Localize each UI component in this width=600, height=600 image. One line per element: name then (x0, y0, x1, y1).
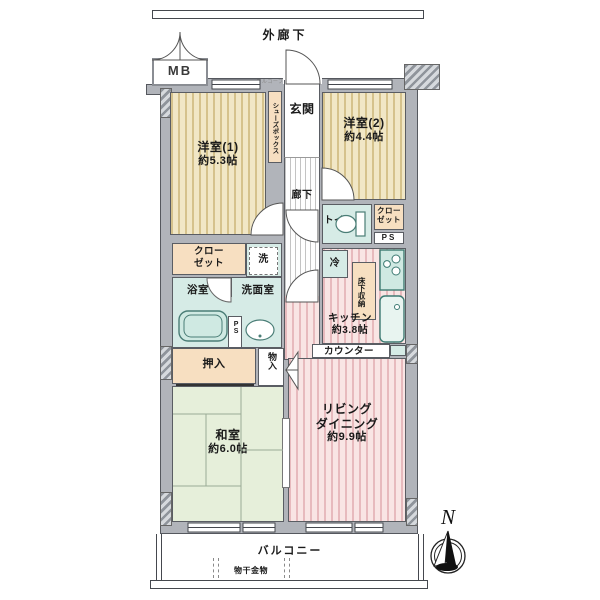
entrance (284, 80, 320, 158)
washer-label: 洗 (249, 254, 278, 266)
pipe-space-right-label: PS (374, 233, 404, 243)
room-western-2 (322, 92, 406, 200)
wall-hatch-right-mid (406, 344, 418, 364)
toilet-label: トイレ (322, 215, 356, 227)
balcony-label: バルコニー (235, 545, 345, 558)
outer-corridor-rail (152, 10, 424, 19)
room-western-1-label: 洋室(1) 約5.3帖 (170, 140, 266, 168)
hallway-label: 廊下 (284, 190, 320, 202)
wall-hatch-bottomleft (160, 492, 172, 526)
entrance-alcove (283, 46, 322, 84)
compass-north-label: N (440, 505, 456, 529)
laundry-fitting-label: 物干金物 (222, 566, 280, 576)
counter-label: カウンター (314, 346, 384, 358)
closet-right-label: クロー ゼット (374, 206, 404, 224)
wall-hatch-left-mid (160, 346, 172, 380)
outer-corridor-label: 外廊下 (230, 28, 340, 43)
bath-label: 浴室 (174, 284, 222, 297)
entrance-label: 玄関 (284, 102, 320, 117)
alcove-label: アルコーブ (253, 79, 287, 85)
underfloor-storage-label: 床下収納 (357, 268, 366, 316)
kitchen-label: キッチン 約3.8帖 (306, 312, 394, 337)
floor-plan: 外廊下 MB バルコニー 物干金物 アルコーブ 玄関 シューズボ (0, 0, 600, 600)
meter-box-label: MB (152, 63, 208, 79)
pipe-space-left-label: PS (231, 321, 240, 335)
bath-divider-wall (228, 277, 232, 297)
balcony-left-pier (156, 534, 162, 580)
oshiire-label: 押入 (172, 358, 256, 371)
counter-end (390, 345, 406, 356)
living-dining-label: リビング ダイニング 約9.9帖 (288, 402, 406, 445)
hallway (284, 158, 320, 298)
compass-icon: N (431, 505, 465, 573)
mb-double-door-icon (152, 32, 208, 60)
room-japanese-label: 和室 約6.0帖 (172, 428, 284, 456)
shoes-box-label: シューズボックス (270, 96, 278, 160)
balcony-rail (150, 580, 428, 589)
balcony-right-pier (418, 534, 424, 580)
washroom-label: 洗面室 (234, 284, 282, 297)
laundry-fitting-mark-left (213, 558, 219, 578)
storage-label: 物入 (266, 352, 277, 370)
room-western-2-label: 洋室(2) 約4.4帖 (322, 116, 406, 144)
laundry-fitting-mark-right (284, 558, 290, 578)
wall-hatch-bottomright (406, 498, 418, 526)
fridge-label: 冷 (322, 258, 348, 270)
closet-left-label: クロー ゼット (172, 246, 246, 269)
wall-hatch-topright (404, 64, 440, 90)
